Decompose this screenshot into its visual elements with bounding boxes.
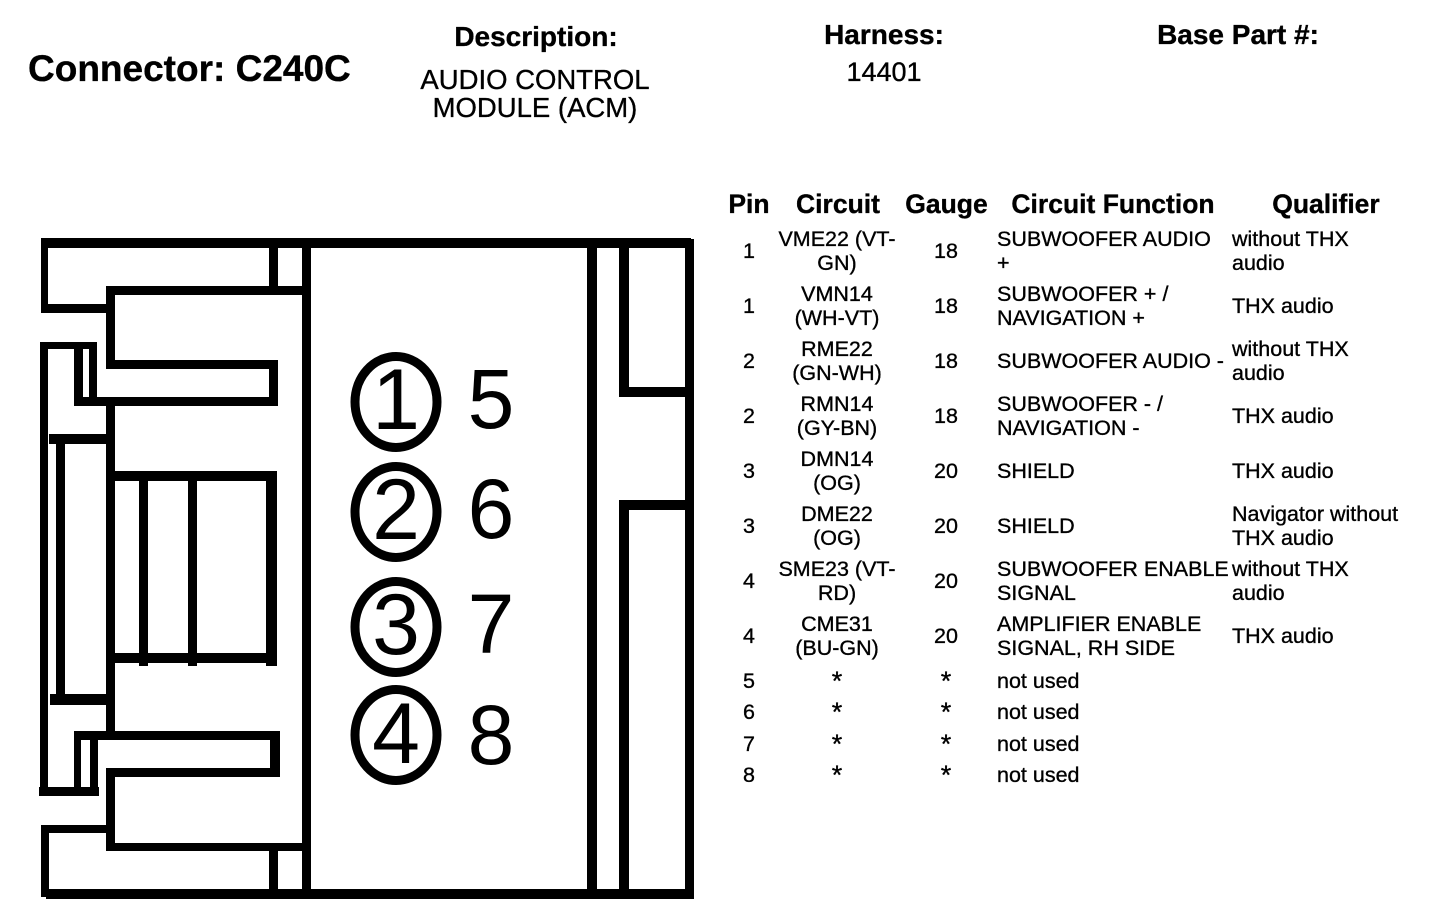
svg-text:2: 2 (372, 462, 420, 558)
svg-text:4: 4 (372, 686, 420, 782)
svg-text:5: 5 (468, 352, 515, 446)
svg-text:6: 6 (468, 462, 515, 556)
svg-text:1: 1 (372, 352, 420, 448)
svg-text:7: 7 (468, 577, 515, 671)
svg-text:8: 8 (468, 688, 515, 782)
svg-text:3: 3 (372, 577, 420, 673)
